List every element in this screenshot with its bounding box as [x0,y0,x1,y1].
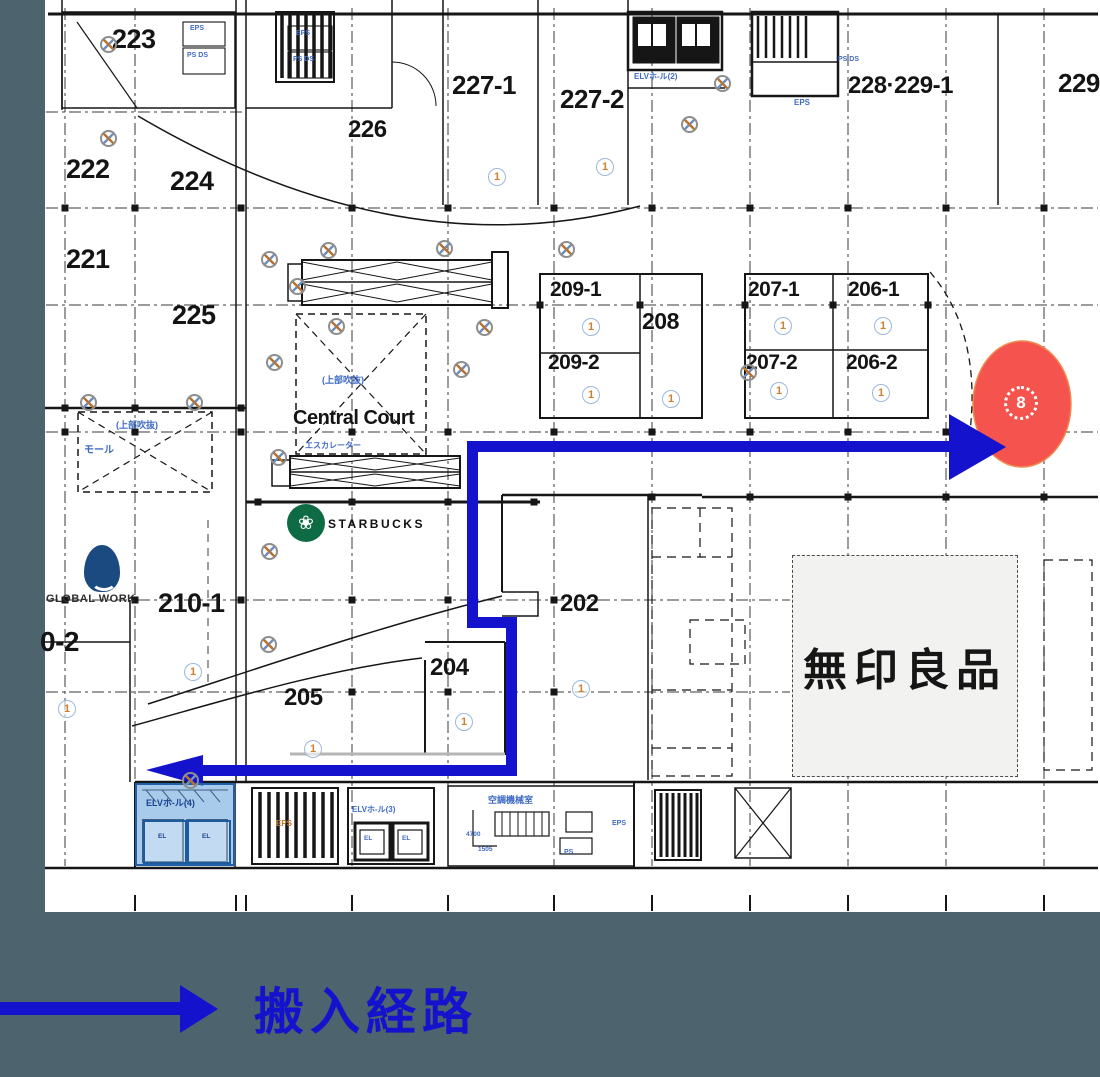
sprinkler-icon [714,75,731,92]
room-label: 223 [112,26,156,53]
utility-label: 4700 [466,832,480,839]
utility-label: EPS [296,30,310,37]
sprinkler-icon [80,394,97,411]
circled-one-icon: 1 [455,713,473,731]
global-work-label: GLOBAL WORK [46,593,136,605]
sprinkler-icon [266,354,283,371]
utility-label: EPS [276,820,292,828]
room-label: 207-1 [748,279,799,300]
circled-one-icon: 1 [774,317,792,335]
circled-one-icon: 1 [596,158,614,176]
starbucks-logo-icon: ❀ [287,504,325,542]
starbucks-label: STARBUCKS [328,517,425,531]
room-label: 206-1 [848,279,899,300]
room-label: 229 [1058,70,1100,96]
sprinkler-icon [740,364,757,381]
sprinkler-icon [260,636,277,653]
circled-one-icon: 1 [304,740,322,758]
elevator-cell [187,820,231,864]
utility-label: EL [202,834,210,841]
utility-label: エスカレーター [305,442,361,450]
legend-route-arrow [0,1002,180,1015]
room-label: 209-1 [550,279,601,300]
room-label: 205 [284,686,323,710]
utility-label: PS DS [187,52,208,59]
sprinkler-icon [289,278,306,295]
sprinkler-icon [476,319,493,336]
room-label: 227-1 [452,72,516,98]
circled-one-icon: 1 [872,384,890,402]
circled-one-icon: 1 [58,700,76,718]
sprinkler-icon [328,318,345,335]
utility-label: EPS [612,820,626,827]
circled-one-icon: 1 [572,680,590,698]
utility-label: PS DS [293,56,314,63]
elevator-cell [143,820,187,864]
room-label: 227-2 [560,86,624,112]
room-label: 222 [66,156,110,183]
sprinkler-icon [182,772,199,789]
utility-label: モール [84,446,114,456]
elevator-hall-4-highlight [135,783,235,866]
legend-route-arrowhead-icon [180,985,218,1033]
room-label: 224 [170,168,214,195]
sprinkler-icon [453,361,470,378]
room-label: 225 [172,302,216,329]
utility-label: ELVホ-ル(2) [634,73,677,81]
utility-label: PS [564,849,573,856]
room-label: 221 [66,246,110,273]
sprinkler-icon [436,240,453,257]
circled-one-icon: 1 [662,390,680,408]
muji-store-area: 無印良品 [792,555,1018,777]
sprinkler-icon [270,449,287,466]
utility-label: (上部吹抜) [322,376,364,385]
utility-label: PS DS [838,56,859,63]
utility-label: EL [364,836,372,843]
room-label: 204 [430,656,469,680]
room-label: 0-2 [40,628,79,656]
legend-route-label: 搬入経路 [254,972,478,1044]
utility-label: EL [402,836,410,843]
room-label: 226 [348,118,387,142]
sprinkler-icon [261,543,278,560]
utility-label: 空調機械室 [488,796,533,805]
sprinkler-icon [558,241,575,258]
sprinkler-icon [186,394,203,411]
utility-label: EPS [190,25,204,32]
room-label: 228·229-1 [848,74,953,98]
floorplan-linework [0,0,1100,1077]
circled-one-icon: 1 [582,386,600,404]
utility-label: ELVホ-ル(3) [352,806,395,814]
room-label: 202 [560,592,599,616]
room-label: 206-2 [846,352,897,373]
muji-store-label: 無印良品 [803,634,1007,698]
destination-marker: 8 [1004,386,1038,420]
utility-label: ELVホ-ル(4) [146,799,195,808]
utility-label: 1505 [478,847,492,854]
sprinkler-icon [681,116,698,133]
circled-one-icon: 1 [488,168,506,186]
room-label: 210-1 [158,590,225,617]
room-label: 208 [642,310,679,333]
circled-one-icon: 1 [770,382,788,400]
circled-one-icon: 1 [874,317,892,335]
circled-one-icon: 1 [184,663,202,681]
circled-one-icon: 1 [582,318,600,336]
sprinkler-icon [261,251,278,268]
sprinkler-icon [320,242,337,259]
utility-label: (上部吹抜) [116,421,158,430]
sprinkler-icon [100,36,117,53]
sprinkler-icon [100,130,117,147]
utility-label: EL [158,834,166,841]
room-label: Central Court [293,408,414,428]
floorplan-screenshot: 無印良品 ❀ STARBUCKS GLOBAL WORK 8 搬入経路 2232… [0,0,1100,1077]
room-label: 209-2 [548,352,599,373]
utility-label: EPS [794,99,810,107]
global-work-logo-icon [84,545,120,592]
